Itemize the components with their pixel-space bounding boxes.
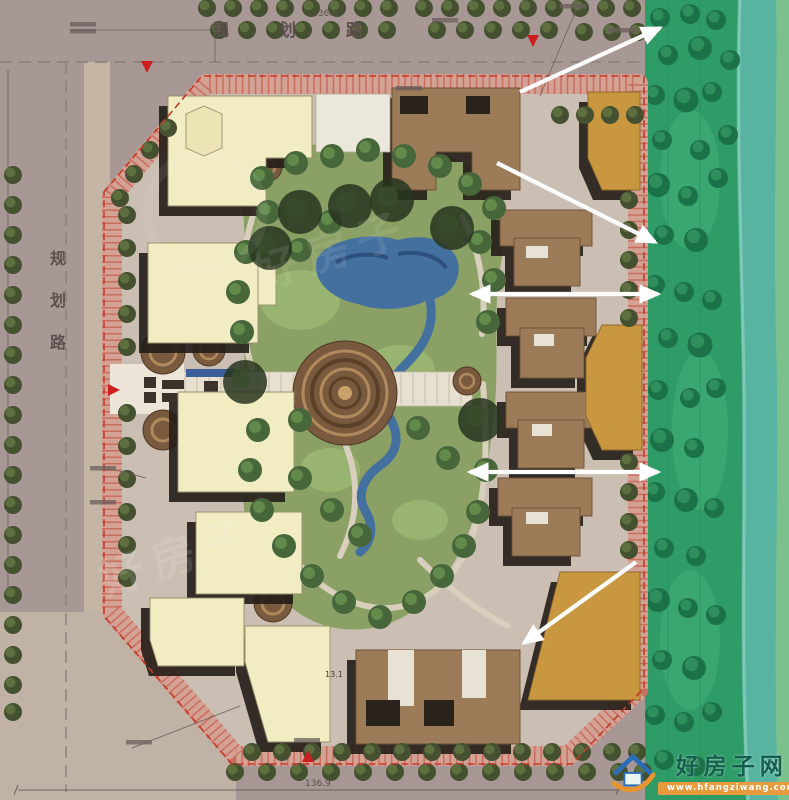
site-plan-drawing [0,0,789,800]
tower-east-1 [514,238,580,286]
site-plan-page: 规 划 路 136.6 规划路 136.9 13.1 好房子 好房子 好房子网 … [0,0,789,800]
building-southwest [150,598,244,666]
watermark-site-url: www.hfangziwang.com [658,782,789,795]
watermark: 好房子网 www.hfangziwang.com [610,742,789,800]
inner-dimension: 13.1 [325,670,343,679]
watermark-site-name: 好房子网 [676,747,788,781]
bottom-dimension: 136.9 [305,779,331,789]
house-icon [610,746,656,796]
central-plaza-mandala [293,341,397,445]
building-southeast-slab [356,650,520,744]
top-road-label: 规 划 路 [212,16,385,41]
octagonal-roof-detail [186,106,222,156]
edge-building-middle [586,325,642,450]
greenbelt [645,0,789,800]
top-road-dimension: 136.6 [312,9,338,19]
left-road-label: 规划路 [44,250,68,376]
building-west-middle [178,392,294,492]
